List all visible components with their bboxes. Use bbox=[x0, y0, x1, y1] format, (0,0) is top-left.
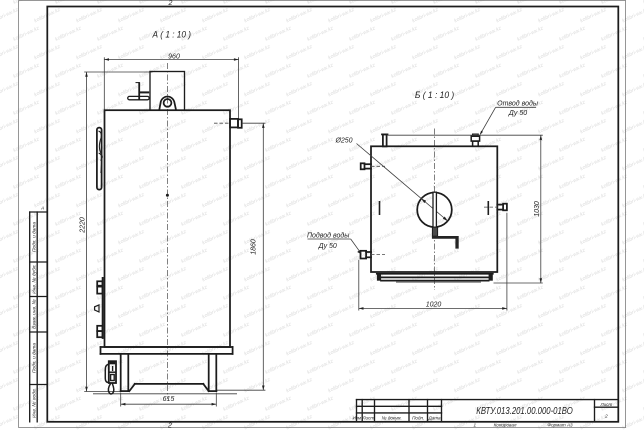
svg-text:Отвод воды: Отвод воды bbox=[497, 99, 539, 107]
svg-text:2220: 2220 bbox=[79, 217, 86, 234]
svg-text:Лист: Лист bbox=[599, 402, 612, 407]
svg-text:Лист: Лист bbox=[361, 415, 374, 420]
svg-text:Взам. инв. №: Взам. инв. № bbox=[31, 299, 37, 329]
svg-text:Подп. и дата: Подп. и дата bbox=[31, 343, 37, 373]
svg-text:Инв. № дубл.: Инв. № дубл. bbox=[31, 264, 37, 294]
svg-text:Б ( 1 : 10 ): Б ( 1 : 10 ) bbox=[415, 90, 454, 101]
svg-text:Инв. № подл.: Инв. № подл. bbox=[31, 388, 37, 418]
svg-text:2: 2 bbox=[167, 423, 172, 430]
svg-text:960: 960 bbox=[168, 54, 180, 61]
svg-text:Подп. и дата: Подп. и дата bbox=[31, 222, 37, 252]
svg-text:Дата: Дата bbox=[427, 415, 441, 420]
svg-text:Ду 50: Ду 50 bbox=[508, 110, 527, 117]
svg-text:2: 2 bbox=[604, 414, 608, 419]
svg-text:Ø250: Ø250 bbox=[334, 137, 352, 144]
svg-text:КВТУ.013.201.00.000-01ВО: КВТУ.013.201.00.000-01ВО bbox=[476, 406, 573, 417]
svg-text:Копировал: Копировал bbox=[494, 423, 517, 428]
svg-text:Ду 50: Ду 50 bbox=[318, 243, 337, 250]
svg-text:1020: 1020 bbox=[426, 302, 442, 309]
svg-text:615: 615 bbox=[163, 396, 175, 403]
svg-text:А ( 1 : 10 ): А ( 1 : 10 ) bbox=[152, 30, 191, 41]
svg-text:1: 1 bbox=[474, 423, 477, 428]
svg-text:1860: 1860 bbox=[250, 239, 257, 255]
svg-text:Изм: Изм bbox=[353, 415, 362, 420]
svg-text:№ докум.: № докум. bbox=[382, 415, 402, 420]
svg-text:1030: 1030 bbox=[534, 201, 541, 217]
svg-text:Подвод воды: Подвод воды bbox=[307, 232, 350, 240]
svg-text:Подп.: Подп. bbox=[412, 415, 424, 420]
svg-text:Формат А3: Формат А3 bbox=[547, 423, 573, 428]
svg-text:А: А bbox=[40, 206, 44, 211]
